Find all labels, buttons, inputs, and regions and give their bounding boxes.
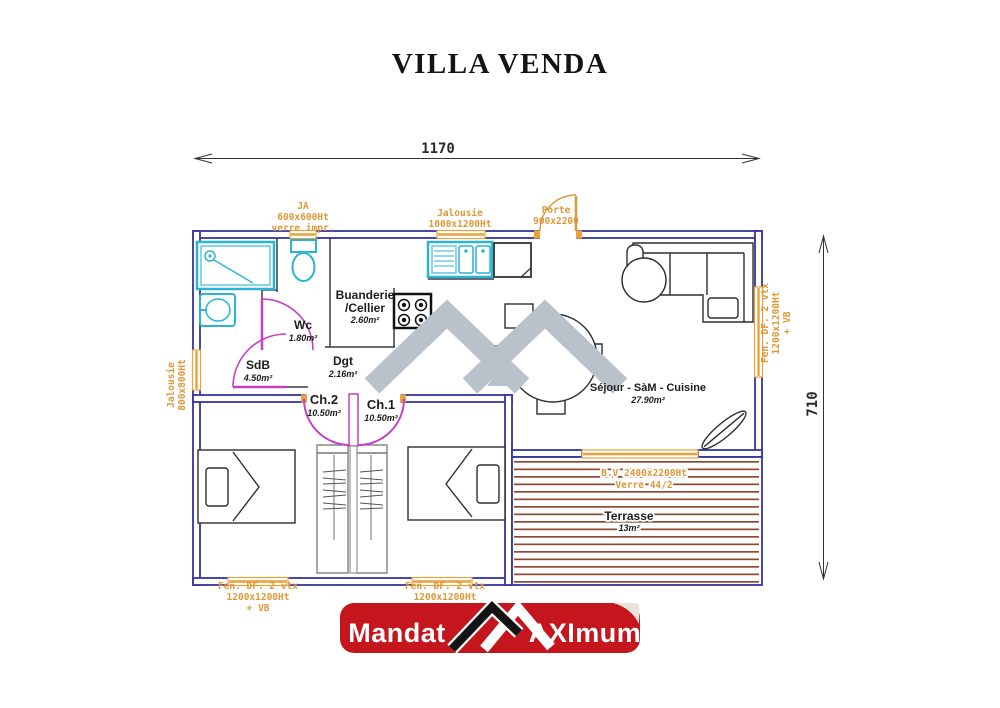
- svg-text:800x800Ht: 800x800Ht: [177, 359, 188, 410]
- room-buanderie: Buanderie: [336, 288, 395, 302]
- label-jalousie-left: Jalousie 800x800Ht: [166, 359, 188, 410]
- svg-text:10.50m²: 10.50m²: [307, 408, 342, 418]
- wall-terrace-top-left: [512, 450, 582, 457]
- pillow: [477, 465, 499, 503]
- wall-bedroom-divider-right: [402, 395, 512, 402]
- svg-text:1.80m²: 1.80m²: [289, 333, 319, 343]
- svg-text:Fen. DF. 2 vtx: Fen. DF. 2 vtx: [218, 581, 298, 592]
- label-porte: Porte 900x2200: [533, 205, 579, 227]
- banner-brand-text: AXImum: [529, 618, 642, 648]
- svg-text:2.16m²: 2.16m²: [328, 369, 359, 379]
- wall-bedroom-divider-left: [193, 395, 305, 402]
- wall-between-wardrobes: [350, 446, 357, 573]
- wardrobe-ch2: [317, 445, 348, 573]
- room-sejour: Séjour - SàM - Cuisine: [590, 382, 706, 394]
- svg-text:4.50m²: 4.50m²: [243, 373, 274, 383]
- kitchen-sink: [428, 242, 492, 277]
- svg-text:Jalousie: Jalousie: [437, 208, 483, 219]
- banner-mandat-text: Mandat: [348, 618, 446, 648]
- room-dgt: Dgt: [333, 354, 353, 368]
- svg-text:2.60m²: 2.60m²: [350, 315, 381, 325]
- svg-text:+ VB: + VB: [247, 603, 270, 614]
- svg-text:10.50m²: 10.50m²: [364, 413, 399, 423]
- room-ch1: Ch.1: [367, 397, 395, 412]
- wardrobe-ch1: [356, 445, 387, 573]
- svg-text:Jalousie: Jalousie: [166, 362, 177, 408]
- plan-title: VILLA VENDA: [392, 48, 609, 80]
- room-ch2: Ch.2: [310, 392, 338, 407]
- svg-text:+ VB: + VB: [782, 311, 793, 334]
- svg-text:Fen. DF. 2 vtx: Fen. DF. 2 vtx: [405, 581, 485, 592]
- svg-text:verre impr.: verre impr.: [272, 223, 335, 234]
- sofa: [622, 243, 753, 322]
- window-jalousie-1000: [437, 231, 485, 239]
- window-jalousie-left: [193, 350, 201, 390]
- toilet: [291, 240, 316, 281]
- dimension-height-label: 710: [805, 391, 821, 416]
- agency-banner: Mandat AXImum: [340, 603, 641, 653]
- shower: [197, 242, 274, 289]
- room-sdb: SdB: [246, 358, 270, 372]
- svg-text:1200x1200Ht: 1200x1200Ht: [771, 292, 782, 355]
- svg-text:B.V 2400x2200Ht: B.V 2400x2200Ht: [601, 468, 687, 479]
- floor-plan-drawing: 1170 710: [0, 0, 1000, 708]
- plant: [698, 407, 750, 454]
- wall-between-bedroom-doors: [349, 394, 358, 446]
- svg-text:27.90m²: 27.90m²: [630, 395, 666, 405]
- svg-text:900x2200: 900x2200: [533, 216, 579, 227]
- bed-ch2: [198, 450, 295, 523]
- svg-text:JA: JA: [297, 201, 309, 212]
- label-fen-right: Fen. DF. 2 vtx 1200x1200Ht + VB: [760, 283, 793, 363]
- wall-terrace-top-right: [698, 450, 762, 457]
- label-fen-bottom-left: Fen. DF. 2 vtx 1200x1200Ht + VB: [218, 581, 298, 614]
- floor-plan-page: 1170 710: [0, 0, 1000, 708]
- bed-ch1: [408, 447, 505, 520]
- pouf: [622, 258, 666, 302]
- label-jalousie-top: Jalousie 1000x1200Ht: [429, 208, 492, 230]
- label-fen-bottom-right: Fen. DF. 2 vtx 1200x1200Ht: [405, 581, 485, 603]
- washbasin: [200, 294, 235, 326]
- dimension-width-label: 1170: [421, 141, 455, 157]
- svg-text:1200x1200Ht: 1200x1200Ht: [414, 592, 477, 603]
- svg-text:Porte: Porte: [542, 205, 571, 216]
- wall-ch1-terrace: [505, 395, 512, 585]
- bay-window: [582, 450, 698, 458]
- svg-text:Fen. DF. 2 vtx: Fen. DF. 2 vtx: [760, 283, 771, 363]
- svg-text:1000x1200Ht: 1000x1200Ht: [429, 219, 492, 230]
- svg-text:600x600Ht: 600x600Ht: [277, 212, 328, 223]
- svg-text:Verre 44/2: Verre 44/2: [615, 480, 672, 491]
- svg-text:13m²: 13m²: [618, 523, 640, 533]
- pillow: [206, 468, 228, 506]
- dimension-top: [195, 154, 759, 163]
- label-ja-window: JA 600x600Ht verre impr.: [272, 201, 335, 234]
- room-terrasse: Terrasse: [604, 509, 653, 523]
- svg-text:1200x1200Ht: 1200x1200Ht: [227, 592, 290, 603]
- room-wc: Wc: [294, 318, 312, 332]
- svg-text:/Cellier: /Cellier: [345, 301, 385, 315]
- fridge: [494, 243, 531, 277]
